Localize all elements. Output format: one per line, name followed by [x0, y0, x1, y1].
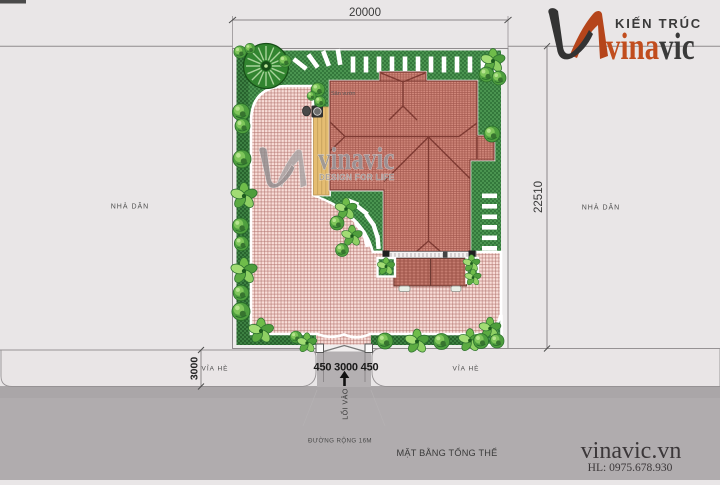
svg-text:3000: 3000: [189, 357, 201, 381]
svg-text:vinavic.vn: vinavic.vn: [581, 438, 682, 464]
svg-text:NHÀ DÂN: NHÀ DÂN: [582, 203, 621, 212]
svg-text:22510: 22510: [533, 181, 545, 213]
svg-text:450 3000 450: 450 3000 450: [314, 362, 379, 374]
svg-text:HL: 0975.678.930: HL: 0975.678.930: [588, 462, 673, 474]
svg-text:Sân vườn: Sân vườn: [331, 91, 355, 97]
svg-text:vinavic: vinavic: [606, 26, 695, 67]
svg-text:VỈA HÈ: VỈA HÈ: [453, 364, 480, 373]
svg-text:DESIGN FOR LIFE: DESIGN FOR LIFE: [319, 173, 395, 182]
svg-text:20000: 20000: [349, 7, 381, 19]
svg-text:VỈA HÈ: VỈA HÈ: [202, 364, 229, 373]
svg-text:vinavic: vinavic: [318, 142, 394, 176]
svg-text:NHÀ DÂN: NHÀ DÂN: [111, 202, 150, 211]
svg-text:ĐƯỜNG RỘNG 16M: ĐƯỜNG RỘNG 16M: [308, 438, 372, 445]
svg-text:MẶT BẰNG TỔNG THỂ: MẶT BẰNG TỔNG THỂ: [397, 447, 498, 458]
